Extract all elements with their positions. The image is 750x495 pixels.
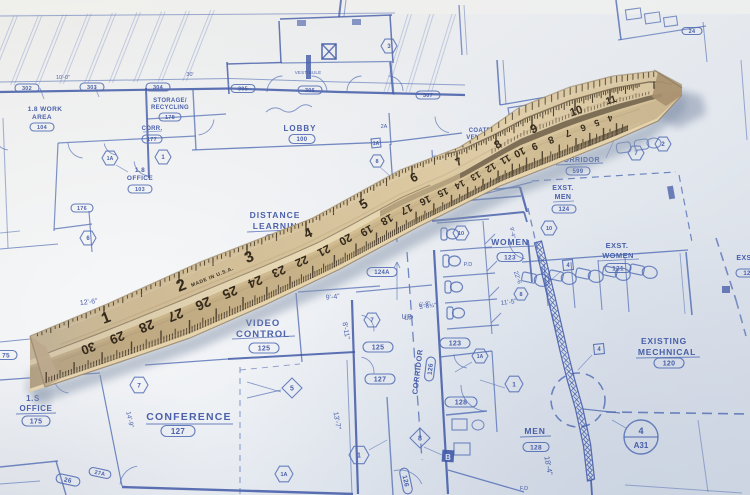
svg-text:127: 127 bbox=[171, 427, 185, 436]
svg-text:100: 100 bbox=[297, 137, 308, 143]
svg-text:178: 178 bbox=[165, 115, 175, 121]
svg-text:24: 24 bbox=[689, 29, 696, 35]
svg-text:175: 175 bbox=[30, 419, 43, 426]
svg-text:75: 75 bbox=[2, 352, 10, 359]
svg-text:1: 1 bbox=[512, 381, 516, 388]
svg-text:LOBBY: LOBBY bbox=[284, 124, 317, 133]
svg-text:RECYCLING: RECYCLING bbox=[151, 105, 189, 111]
svg-text:4: 4 bbox=[638, 426, 643, 436]
svg-text:OFFICE: OFFICE bbox=[127, 175, 153, 182]
svg-text:CONFERENCE: CONFERENCE bbox=[146, 411, 232, 423]
svg-text:1: 1 bbox=[357, 453, 361, 460]
svg-text:302: 302 bbox=[22, 86, 32, 92]
svg-text:30': 30' bbox=[186, 72, 193, 78]
svg-text:12: 12 bbox=[743, 271, 750, 277]
svg-text:307: 307 bbox=[423, 93, 433, 99]
svg-text:128: 128 bbox=[455, 400, 468, 407]
svg-text:103: 103 bbox=[135, 187, 145, 193]
svg-text:120: 120 bbox=[663, 361, 676, 368]
svg-text:128: 128 bbox=[530, 444, 542, 451]
svg-text:2A: 2A bbox=[381, 124, 388, 130]
svg-text:125: 125 bbox=[372, 345, 385, 352]
svg-text:123: 123 bbox=[449, 341, 462, 348]
svg-text:124: 124 bbox=[559, 207, 570, 213]
svg-text:MEN: MEN bbox=[555, 194, 572, 201]
svg-text:F.D: F.D bbox=[520, 486, 528, 492]
svg-text:124A: 124A bbox=[374, 270, 390, 276]
svg-text:306: 306 bbox=[305, 88, 315, 94]
svg-text:1A: 1A bbox=[477, 354, 484, 360]
svg-text:10: 10 bbox=[546, 226, 552, 232]
svg-text:MECHNICAL: MECHNICAL bbox=[638, 347, 696, 357]
svg-text:MEN: MEN bbox=[524, 426, 545, 436]
svg-text:10'-0": 10'-0" bbox=[56, 75, 70, 81]
svg-text:B: B bbox=[445, 453, 451, 462]
svg-text:125: 125 bbox=[258, 346, 271, 353]
svg-text:P.D: P.D bbox=[464, 262, 472, 268]
svg-text:UP: UP bbox=[404, 315, 414, 322]
svg-text:A31: A31 bbox=[634, 441, 649, 450]
svg-text:127: 127 bbox=[374, 377, 387, 384]
svg-text:EXISTING: EXISTING bbox=[641, 336, 687, 346]
svg-text:EXS: EXS bbox=[736, 255, 750, 262]
svg-text:5: 5 bbox=[290, 386, 294, 393]
svg-text:10: 10 bbox=[458, 231, 464, 237]
svg-text:DISTANCE: DISTANCE bbox=[250, 210, 301, 220]
svg-text:STORAGE/: STORAGE/ bbox=[153, 98, 187, 104]
svg-text:176: 176 bbox=[77, 206, 87, 212]
svg-text:304: 304 bbox=[153, 85, 164, 91]
svg-text:8: 8 bbox=[519, 292, 522, 298]
svg-text:EXST.: EXST. bbox=[606, 241, 629, 250]
svg-text:305: 305 bbox=[238, 86, 248, 92]
svg-text:1A: 1A bbox=[373, 141, 380, 147]
svg-text:1.8: 1.8 bbox=[135, 167, 145, 174]
svg-text:AREA: AREA bbox=[32, 114, 52, 121]
svg-text:1.8 WORK: 1.8 WORK bbox=[28, 106, 63, 113]
svg-text:8: 8 bbox=[375, 159, 378, 165]
svg-text:126: 126 bbox=[427, 363, 435, 376]
svg-text:1A: 1A bbox=[280, 472, 287, 478]
svg-text:123: 123 bbox=[504, 254, 516, 261]
svg-text:104: 104 bbox=[37, 125, 48, 131]
svg-text:7: 7 bbox=[137, 382, 141, 389]
svg-text:8: 8 bbox=[418, 436, 422, 443]
svg-text:EXST.: EXST. bbox=[552, 185, 573, 192]
svg-text:1A: 1A bbox=[107, 156, 114, 162]
